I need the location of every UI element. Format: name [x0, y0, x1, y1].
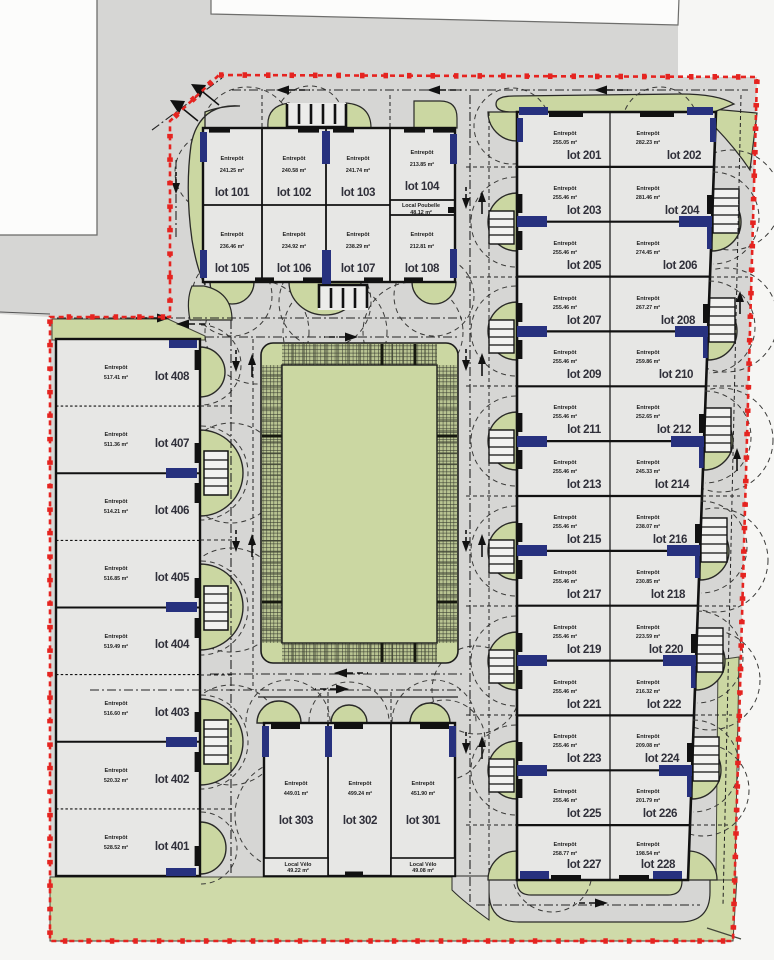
svg-text:Entrepôt: Entrepôt — [347, 156, 370, 162]
svg-text:Entrepôt: Entrepôt — [105, 499, 128, 505]
svg-text:Entrepôt: Entrepôt — [554, 405, 577, 411]
svg-text:255.05 m²: 255.05 m² — [553, 140, 577, 146]
svg-text:255.46 m²: 255.46 m² — [553, 195, 577, 201]
svg-text:lot 106: lot 106 — [277, 262, 312, 275]
svg-text:Entrepôt: Entrepôt — [637, 131, 660, 137]
svg-text:lot 401: lot 401 — [155, 840, 190, 853]
svg-text:201.79 m²: 201.79 m² — [636, 798, 660, 804]
svg-text:Entrepôt: Entrepôt — [637, 405, 660, 411]
svg-text:Entrepôt: Entrepôt — [554, 625, 577, 631]
svg-text:209.08 m²: 209.08 m² — [636, 743, 660, 749]
svg-text:519.49 m²: 519.49 m² — [104, 644, 128, 650]
svg-text:238.07 m²: 238.07 m² — [636, 524, 660, 530]
svg-text:216.32 m²: 216.32 m² — [636, 689, 660, 695]
svg-text:274.45 m²: 274.45 m² — [636, 250, 660, 256]
svg-text:lot 205: lot 205 — [567, 259, 602, 272]
svg-text:Entrepôt: Entrepôt — [221, 232, 244, 238]
svg-text:255.46 m²: 255.46 m² — [553, 250, 577, 256]
svg-text:Entrepôt: Entrepôt — [637, 842, 660, 848]
svg-text:lot 302: lot 302 — [343, 814, 377, 827]
svg-text:lot 405: lot 405 — [155, 571, 190, 584]
svg-text:lot 202: lot 202 — [667, 149, 701, 162]
svg-text:lot 102: lot 102 — [277, 186, 311, 199]
svg-text:lot 214: lot 214 — [655, 478, 690, 491]
svg-text:Entrepôt: Entrepôt — [411, 150, 434, 156]
svg-text:Entrepôt: Entrepôt — [349, 781, 372, 787]
svg-text:520.32 m²: 520.32 m² — [104, 778, 128, 784]
svg-text:lot 220: lot 220 — [649, 643, 683, 656]
svg-text:511.36 m²: 511.36 m² — [104, 442, 128, 448]
svg-text:Entrepôt: Entrepôt — [283, 156, 306, 162]
svg-text:48.12 m²: 48.12 m² — [410, 210, 432, 216]
svg-text:255.46 m²: 255.46 m² — [553, 414, 577, 420]
svg-text:lot 222: lot 222 — [647, 698, 681, 711]
svg-text:241.25 m²: 241.25 m² — [220, 168, 244, 174]
svg-text:lot 204: lot 204 — [665, 204, 700, 217]
svg-text:198.54 m²: 198.54 m² — [636, 851, 660, 857]
svg-text:lot 201: lot 201 — [567, 149, 602, 162]
svg-text:255.46 m²: 255.46 m² — [553, 469, 577, 475]
svg-text:lot 403: lot 403 — [155, 706, 190, 719]
svg-text:Entrepôt: Entrepôt — [637, 296, 660, 302]
svg-text:528.52 m²: 528.52 m² — [104, 845, 128, 851]
svg-text:Entrepôt: Entrepôt — [637, 515, 660, 521]
svg-text:Entrepôt: Entrepôt — [554, 131, 577, 137]
svg-text:Entrepôt: Entrepôt — [554, 842, 577, 848]
svg-text:lot 226: lot 226 — [643, 807, 678, 820]
svg-text:245.33 m²: 245.33 m² — [636, 469, 660, 475]
svg-text:Entrepôt: Entrepôt — [554, 734, 577, 740]
svg-text:230.85 m²: 230.85 m² — [636, 579, 660, 585]
svg-text:lot 224: lot 224 — [645, 752, 680, 765]
svg-text:Entrepôt: Entrepôt — [637, 186, 660, 192]
svg-text:212.81 m²: 212.81 m² — [410, 244, 434, 250]
svg-text:Entrepôt: Entrepôt — [637, 350, 660, 356]
svg-text:lot 216: lot 216 — [653, 533, 688, 546]
svg-text:lot 206: lot 206 — [663, 259, 698, 272]
svg-text:lot 217: lot 217 — [567, 588, 601, 601]
svg-text:Local Poubelle: Local Poubelle — [402, 203, 440, 209]
svg-text:lot 101: lot 101 — [215, 186, 250, 199]
svg-text:Entrepôt: Entrepôt — [412, 781, 435, 787]
svg-text:Entrepôt: Entrepôt — [105, 566, 128, 572]
svg-text:Entrepôt: Entrepôt — [637, 680, 660, 686]
svg-text:Entrepôt: Entrepôt — [105, 701, 128, 707]
svg-text:Entrepôt: Entrepôt — [554, 460, 577, 466]
svg-text:Entrepôt: Entrepôt — [637, 734, 660, 740]
svg-text:255.46 m²: 255.46 m² — [553, 524, 577, 530]
svg-text:Entrepôt: Entrepôt — [554, 186, 577, 192]
svg-text:514.21 m²: 514.21 m² — [104, 509, 128, 515]
svg-text:Entrepôt: Entrepôt — [637, 625, 660, 631]
svg-text:lot 218: lot 218 — [651, 588, 686, 601]
svg-text:255.46 m²: 255.46 m² — [553, 305, 577, 311]
svg-text:Entrepôt: Entrepôt — [105, 835, 128, 841]
svg-text:258.77 m²: 258.77 m² — [553, 851, 577, 857]
svg-text:lot 209: lot 209 — [567, 368, 602, 381]
svg-text:517.41 m²: 517.41 m² — [104, 375, 128, 381]
svg-text:lot 212: lot 212 — [657, 423, 691, 436]
svg-text:282.23 m²: 282.23 m² — [636, 140, 660, 146]
svg-text:Entrepôt: Entrepôt — [637, 789, 660, 795]
svg-text:lot 103: lot 103 — [341, 186, 376, 199]
svg-text:240.58 m²: 240.58 m² — [282, 168, 306, 174]
svg-text:255.46 m²: 255.46 m² — [553, 359, 577, 365]
svg-text:252.65 m²: 252.65 m² — [636, 414, 660, 420]
svg-text:Entrepôt: Entrepôt — [105, 365, 128, 371]
svg-text:49.08 m²: 49.08 m² — [412, 868, 434, 874]
svg-text:451.90 m²: 451.90 m² — [411, 791, 435, 797]
svg-text:lot 225: lot 225 — [567, 807, 602, 820]
svg-text:Entrepôt: Entrepôt — [637, 570, 660, 576]
svg-text:Entrepôt: Entrepôt — [105, 634, 128, 640]
svg-text:lot 208: lot 208 — [661, 314, 696, 327]
svg-text:lot 303: lot 303 — [279, 814, 314, 827]
svg-text:236.46 m²: 236.46 m² — [220, 244, 244, 250]
svg-text:281.46 m²: 281.46 m² — [636, 195, 660, 201]
svg-text:213.85 m²: 213.85 m² — [410, 162, 434, 168]
svg-text:Entrepôt: Entrepôt — [554, 296, 577, 302]
svg-text:lot 105: lot 105 — [215, 262, 250, 275]
svg-text:Entrepôt: Entrepôt — [554, 515, 577, 521]
svg-text:lot 108: lot 108 — [405, 262, 440, 275]
svg-text:49.22 m²: 49.22 m² — [287, 868, 309, 874]
svg-text:Entrepôt: Entrepôt — [554, 570, 577, 576]
svg-text:lot 107: lot 107 — [341, 262, 375, 275]
svg-text:255.46 m²: 255.46 m² — [553, 798, 577, 804]
svg-text:Entrepôt: Entrepôt — [347, 232, 370, 238]
svg-text:lot 203: lot 203 — [567, 204, 602, 217]
svg-text:lot 215: lot 215 — [567, 533, 602, 546]
svg-text:259.86 m²: 259.86 m² — [636, 359, 660, 365]
svg-text:lot 404: lot 404 — [155, 638, 190, 651]
svg-text:Entrepôt: Entrepôt — [283, 232, 306, 238]
svg-text:241.74 m²: 241.74 m² — [346, 168, 370, 174]
svg-text:Entrepôt: Entrepôt — [554, 680, 577, 686]
svg-text:lot 219: lot 219 — [567, 643, 602, 656]
svg-text:516.85 m²: 516.85 m² — [104, 576, 128, 582]
svg-text:255.46 m²: 255.46 m² — [553, 634, 577, 640]
svg-text:Entrepôt: Entrepôt — [637, 460, 660, 466]
svg-text:lot 227: lot 227 — [567, 858, 601, 871]
svg-text:449.01 m²: 449.01 m² — [284, 791, 308, 797]
svg-text:Entrepôt: Entrepôt — [554, 241, 577, 247]
svg-text:lot 301: lot 301 — [406, 814, 441, 827]
svg-text:lot 223: lot 223 — [567, 752, 602, 765]
svg-text:Entrepôt: Entrepôt — [554, 350, 577, 356]
svg-text:lot 406: lot 406 — [155, 504, 190, 517]
svg-text:223.59 m²: 223.59 m² — [636, 634, 660, 640]
svg-text:238.29 m²: 238.29 m² — [346, 244, 370, 250]
svg-text:Entrepôt: Entrepôt — [105, 432, 128, 438]
svg-text:516.60 m²: 516.60 m² — [104, 711, 128, 717]
svg-text:lot 213: lot 213 — [567, 478, 602, 491]
svg-text:255.46 m²: 255.46 m² — [553, 743, 577, 749]
svg-text:lot 408: lot 408 — [155, 370, 190, 383]
svg-text:lot 402: lot 402 — [155, 773, 189, 786]
svg-text:Entrepôt: Entrepôt — [105, 768, 128, 774]
svg-text:Entrepôt: Entrepôt — [637, 241, 660, 247]
svg-text:Entrepôt: Entrepôt — [221, 156, 244, 162]
svg-text:267.27 m²: 267.27 m² — [636, 305, 660, 311]
svg-text:Entrepôt: Entrepôt — [411, 232, 434, 238]
svg-text:lot 207: lot 207 — [567, 314, 601, 327]
svg-text:499.24 m²: 499.24 m² — [348, 791, 372, 797]
svg-text:lot 104: lot 104 — [405, 180, 440, 193]
svg-text:Entrepôt: Entrepôt — [285, 781, 308, 787]
svg-text:lot 407: lot 407 — [155, 437, 189, 450]
svg-text:255.46 m²: 255.46 m² — [553, 579, 577, 585]
svg-text:lot 210: lot 210 — [659, 368, 693, 381]
svg-text:234.92 m²: 234.92 m² — [282, 244, 306, 250]
svg-text:lot 228: lot 228 — [641, 858, 676, 871]
svg-text:lot 221: lot 221 — [567, 698, 602, 711]
svg-text:lot 211: lot 211 — [567, 423, 602, 436]
svg-text:255.46 m²: 255.46 m² — [553, 689, 577, 695]
svg-text:Entrepôt: Entrepôt — [554, 789, 577, 795]
